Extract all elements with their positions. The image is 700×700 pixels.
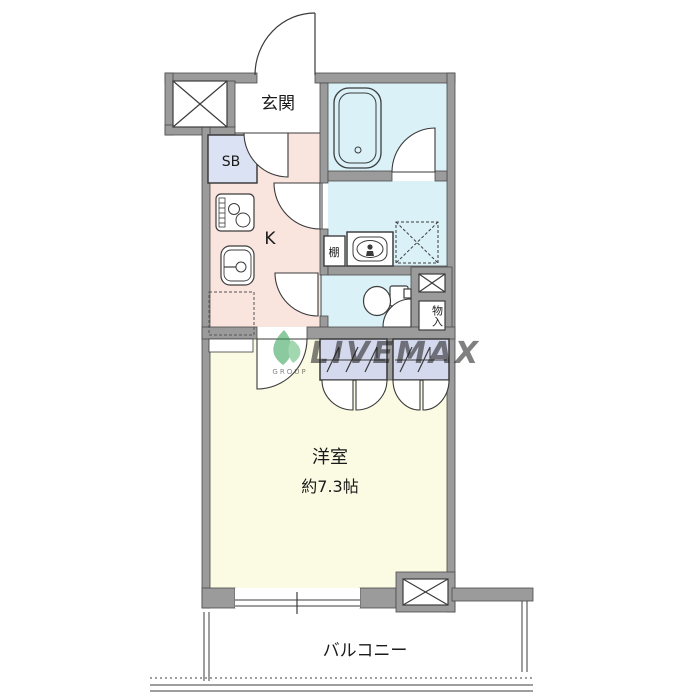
floor-plan-page: 玄関 SB K 棚 物入 洋室 約7.3帖 バルコニー GROUP LIVEMA…	[0, 0, 700, 700]
window-icon	[235, 588, 360, 614]
floor-plan-drawing: 玄関 SB K 棚 物入 洋室 約7.3帖 バルコニー GROUP LIVEMA…	[0, 0, 700, 700]
pipe-space-top-left-icon	[173, 81, 227, 127]
watermark-subtext: GROUP	[272, 368, 307, 376]
shelf-label: 棚	[329, 245, 340, 259]
pipe-space-bottom-right-icon	[403, 579, 448, 605]
kitchen-label: K	[264, 229, 276, 249]
sink-icon	[221, 246, 254, 285]
watermark-text: LIVEMAX	[310, 336, 481, 371]
living-room-label: 洋室	[312, 447, 348, 468]
storage-label: 物入	[431, 304, 444, 327]
genkan-label: 玄関	[261, 94, 295, 114]
pipe-space-mid-right-icon	[419, 274, 445, 292]
washbasin-icon	[347, 232, 393, 266]
entrance-door-icon	[255, 13, 315, 75]
counter-ledge	[209, 339, 253, 352]
stove-icon	[216, 194, 254, 231]
balcony-label: バルコニー	[323, 641, 408, 661]
living-room-size-label: 約7.3帖	[301, 477, 358, 496]
shoe-box-label: SB	[222, 154, 241, 170]
